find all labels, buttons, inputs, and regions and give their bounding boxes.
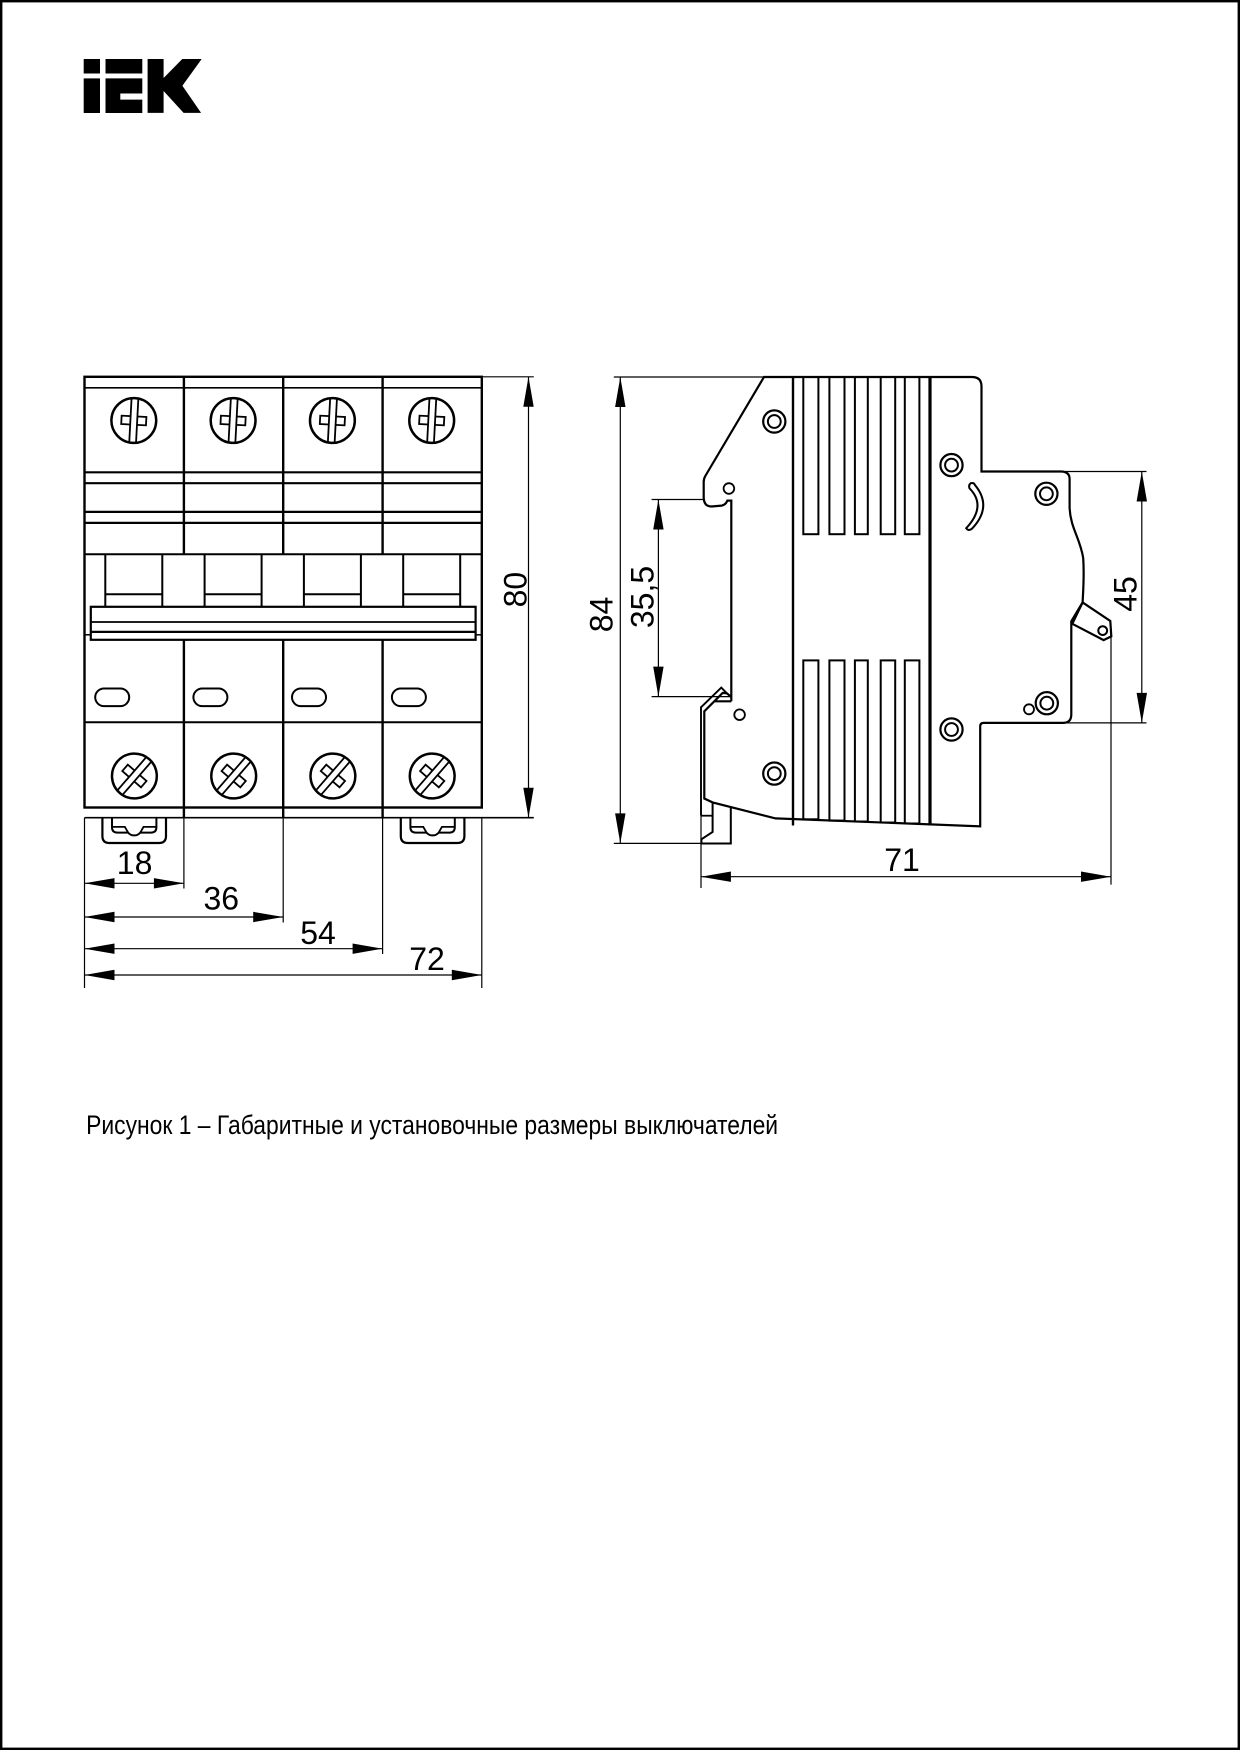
svg-text:84: 84 [584, 597, 620, 633]
svg-text:18: 18 [117, 845, 153, 881]
svg-text:45: 45 [1108, 576, 1144, 612]
svg-text:71: 71 [884, 842, 920, 878]
svg-text:72: 72 [409, 941, 445, 977]
svg-text:80: 80 [498, 572, 534, 608]
svg-text:36: 36 [204, 880, 240, 916]
svg-text:35,5: 35,5 [625, 566, 661, 628]
svg-text:54: 54 [300, 915, 336, 951]
svg-text:Рисунок 1 – Габаритные и устан: Рисунок 1 – Габаритные и установочные ра… [86, 1110, 778, 1140]
